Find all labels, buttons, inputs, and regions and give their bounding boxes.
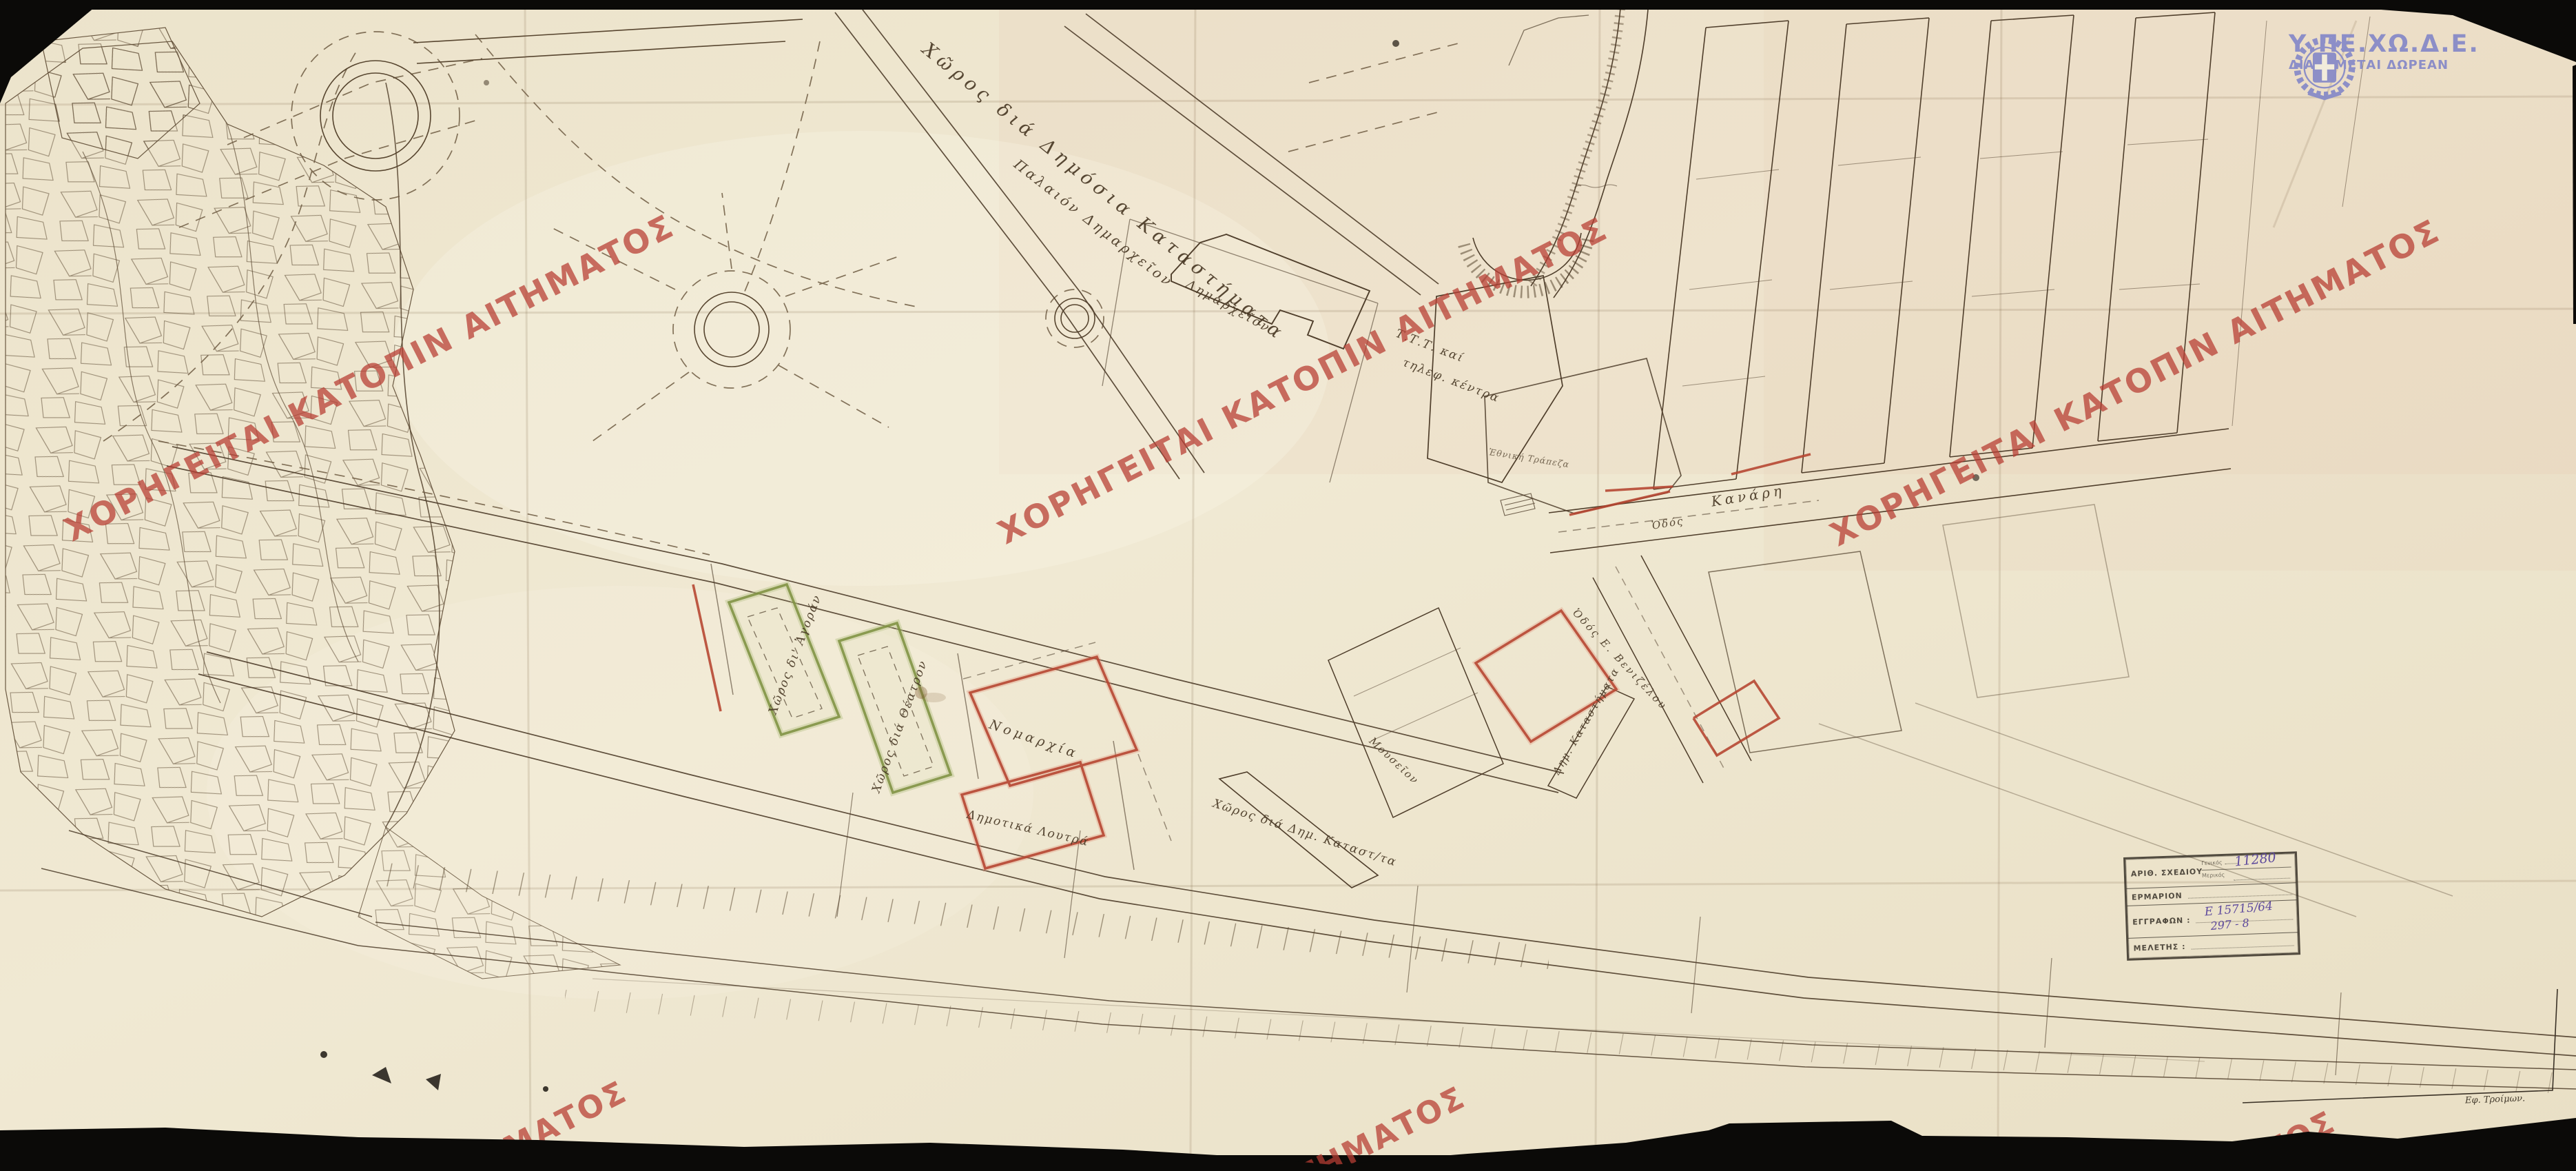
scan-black-edges: [0, 0, 2576, 1171]
greek-coat-of-arms-icon: [2289, 32, 2360, 103]
stamp-document-page-value: 297 - 8: [2210, 916, 2250, 933]
stamp-plan-number-value: 11280: [2234, 850, 2276, 869]
stamp-cabinet-label: ΕΡΜΑΡΙΟΝ: [2127, 891, 2183, 902]
archive-stamp-box: ΑΡΙΘ. ΣΧΕΔΙΟΥ Γενικός Μερικός 11280 ΕΡΜΑ…: [2123, 851, 2300, 961]
ministry-logo: Υ.ΠΕ.ΧΩ.Δ.Ε. ΔΙΑΝΕΜΕΤΑΙ ΔΩΡΕΑΝ: [2289, 32, 2480, 72]
stamp-general-sublabel: Γενικός: [2201, 859, 2223, 866]
stamp-documents-label: ΕΓΓΡΑΦΩΝ :: [2127, 915, 2191, 926]
stamp-study-label: ΜΕΛΕΤΗΣ :: [2128, 941, 2185, 953]
scanned-map-page: Χῶρος διά Δημόσια Καταστήματα Παλαιόν Δη…: [0, 0, 2576, 1171]
stamp-partial-sublabel: Μερικός: [2202, 872, 2225, 879]
stamp-plan-number-label: ΑΡΙΘ. ΣΧΕΔΙΟΥ: [2126, 866, 2203, 878]
